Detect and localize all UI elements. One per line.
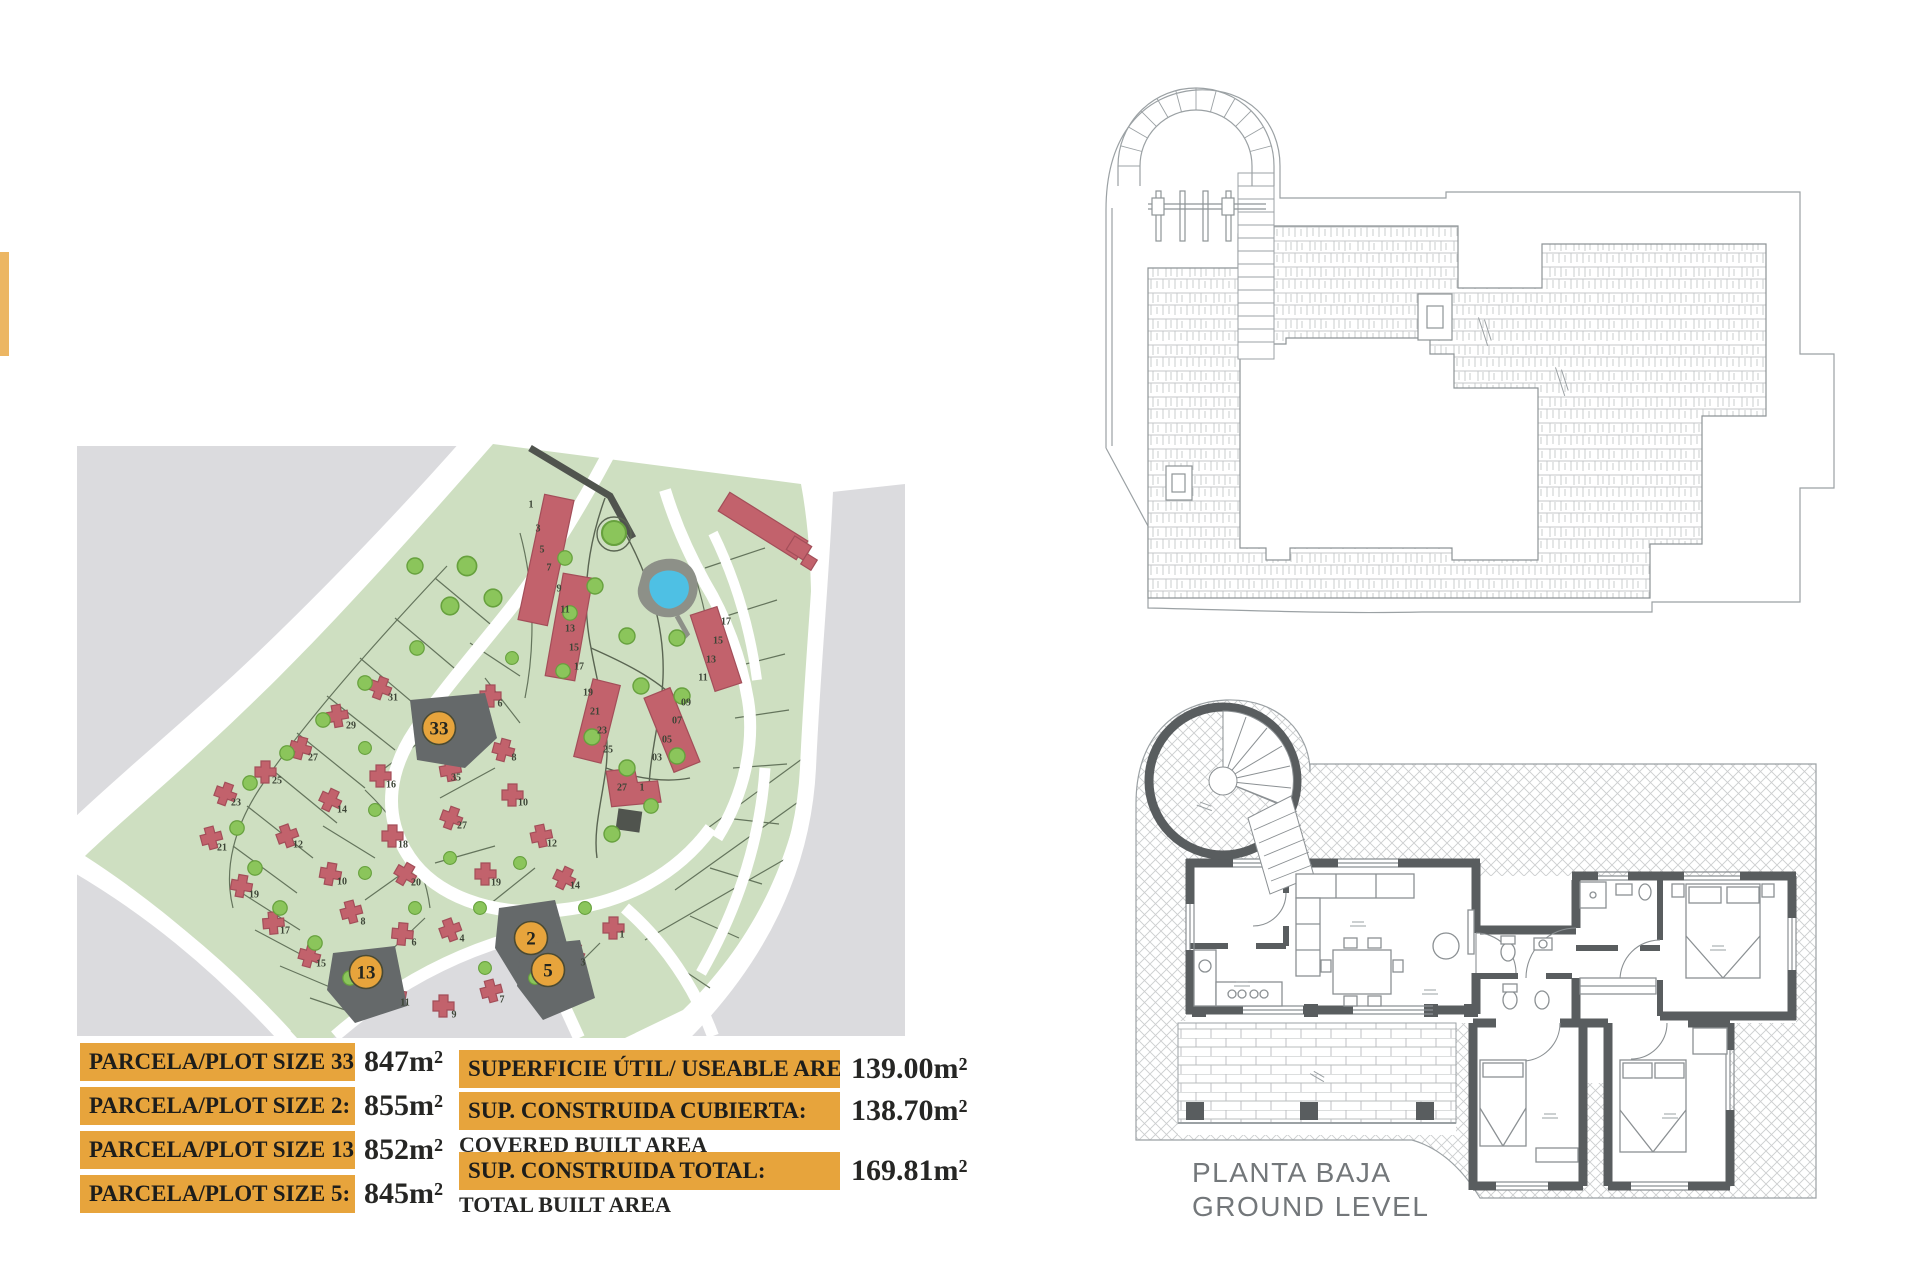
plot-number: 31 bbox=[388, 693, 398, 704]
area-value: 138.70m² bbox=[851, 1092, 967, 1130]
plot-size-label: PARCELA/PLOT SIZE 5: bbox=[80, 1175, 355, 1213]
plot-number: 11 bbox=[560, 605, 569, 616]
plot-size-row: PARCELA/PLOT SIZE 5:845m² bbox=[80, 1175, 510, 1213]
plot-number: 3 bbox=[536, 524, 541, 535]
roof-stair-tower bbox=[1118, 88, 1274, 186]
plot-number: 09 bbox=[681, 698, 691, 709]
plan-caption-line1: PLANTA BAJA bbox=[1192, 1156, 1429, 1190]
plot-number: 17 bbox=[280, 926, 290, 937]
plot-number: 11 bbox=[400, 998, 409, 1009]
roof-stair-flight bbox=[1238, 173, 1274, 359]
plot-number: 35 bbox=[451, 773, 461, 784]
plot-number: 12 bbox=[293, 840, 303, 851]
plot-size-row: PARCELA/PLOT SIZE 33:847m² bbox=[80, 1043, 510, 1081]
plan-caption-line2: GROUND LEVEL bbox=[1192, 1190, 1429, 1224]
plot-number: 13 bbox=[706, 655, 716, 666]
highlight-marker-2: 2 bbox=[515, 922, 548, 955]
highlight-number: 5 bbox=[543, 961, 553, 982]
area-value: 169.81m² bbox=[851, 1152, 967, 1190]
plot-number: 16 bbox=[386, 780, 396, 791]
plot-number: 6 bbox=[498, 699, 503, 710]
plot-number: 14 bbox=[570, 881, 580, 892]
plot-number: 20 bbox=[411, 878, 421, 889]
plot-number: 21 bbox=[217, 843, 227, 854]
plot-size-label: PARCELA/PLOT SIZE 2: bbox=[80, 1087, 355, 1125]
plot-number: 19 bbox=[583, 688, 593, 699]
plot-size-label: PARCELA/PLOT SIZE 33: bbox=[80, 1043, 355, 1081]
plot-number: 03 bbox=[652, 753, 662, 764]
plot-number: 17 bbox=[574, 662, 584, 673]
plot-number: 05 bbox=[662, 735, 672, 746]
highlight-number: 2 bbox=[526, 929, 536, 950]
plot-size-label: PARCELA/PLOT SIZE 13: bbox=[80, 1131, 355, 1169]
plot-number: 8 bbox=[361, 917, 366, 928]
plot-number: 15 bbox=[569, 643, 579, 654]
plot-size-row: PARCELA/PLOT SIZE 13:852m² bbox=[80, 1131, 510, 1169]
plot-number: 1 bbox=[529, 500, 534, 511]
area-row: SUP. CONSTRUIDA CUBIERTA:138.70m² bbox=[459, 1092, 980, 1130]
highlight-number: 33 bbox=[430, 719, 449, 740]
highlight-marker-13: 13 bbox=[350, 956, 383, 989]
plot-number: 8 bbox=[512, 753, 517, 764]
area-row: SUPERFICIE ÚTIL/ USEABLE AREA:139.00m² bbox=[459, 1050, 980, 1088]
plot-number: 15 bbox=[713, 636, 723, 647]
highlight-marker-5: 5 bbox=[532, 954, 565, 987]
area-label: SUP. CONSTRUIDA CUBIERTA: bbox=[459, 1092, 840, 1130]
plot-number: 07 bbox=[672, 716, 682, 727]
area-label: SUP. CONSTRUIDA TOTAL: bbox=[459, 1152, 840, 1190]
plot-size-value: 855m² bbox=[364, 1087, 443, 1125]
area-row: SUP. CONSTRUIDA TOTAL:169.81m² bbox=[459, 1152, 980, 1190]
plot-number: 12 bbox=[547, 839, 557, 850]
page-edge-artifact bbox=[0, 252, 9, 356]
roof-plan bbox=[1090, 58, 1890, 618]
highlight-number: 13 bbox=[357, 963, 376, 984]
plot-number: 3 bbox=[581, 958, 586, 969]
plot-number: 25 bbox=[272, 776, 282, 787]
plot-area-tables: PARCELA/PLOT SIZE 33:847m²PARCELA/PLOT S… bbox=[80, 1040, 980, 1240]
plot-number: 10 bbox=[518, 798, 528, 809]
plot-number: 27 bbox=[308, 753, 318, 764]
plot-number: 27 bbox=[457, 821, 467, 832]
plot-number: 11 bbox=[698, 673, 707, 684]
plot-size-value: 847m² bbox=[364, 1043, 443, 1081]
plot-size-value: 845m² bbox=[364, 1175, 443, 1213]
plot-number: 14 bbox=[337, 805, 347, 816]
plot-number: 21 bbox=[590, 707, 600, 718]
plot-number: 7 bbox=[500, 995, 505, 1006]
plot-number: 23 bbox=[597, 726, 607, 737]
plot-number: 4 bbox=[460, 934, 465, 945]
plot-number: 25 bbox=[603, 745, 613, 756]
plot-number: 29 bbox=[346, 721, 356, 732]
plot-size-row: PARCELA/PLOT SIZE 2:855m² bbox=[80, 1087, 510, 1125]
plot-number: 17 bbox=[721, 617, 731, 628]
plot-number: 27 bbox=[617, 783, 627, 794]
plot-number: 18 bbox=[398, 840, 408, 851]
plot-number: 9 bbox=[452, 1010, 457, 1021]
plot-number: 6 bbox=[412, 938, 417, 949]
plot-number: 1 bbox=[620, 930, 625, 941]
plot-number: 15 bbox=[316, 959, 326, 970]
plan-caption: PLANTA BAJA GROUND LEVEL bbox=[1192, 1156, 1429, 1224]
plot-number: 13 bbox=[565, 624, 575, 635]
plot-number: 9 bbox=[557, 584, 562, 595]
plot-number: 23 bbox=[231, 798, 241, 809]
plot-size-value: 852m² bbox=[364, 1131, 443, 1169]
area-value: 139.00m² bbox=[851, 1050, 967, 1088]
plot-number: 19 bbox=[249, 890, 259, 901]
area-sublabel: TOTAL BUILT AREA bbox=[459, 1192, 671, 1218]
plot-number: 10 bbox=[337, 877, 347, 888]
ground-floor-plan bbox=[1128, 678, 1918, 1218]
highlight-marker-33: 33 bbox=[423, 712, 456, 745]
plot-number: 7 bbox=[547, 563, 552, 574]
plot-number: 5 bbox=[540, 545, 545, 556]
site-plan: 332135 135791113151719212325171513110907… bbox=[65, 438, 905, 1038]
plot-number: 1 bbox=[640, 783, 645, 794]
area-label: SUPERFICIE ÚTIL/ USEABLE AREA: bbox=[459, 1050, 840, 1088]
plot-number: 19 bbox=[491, 878, 501, 889]
